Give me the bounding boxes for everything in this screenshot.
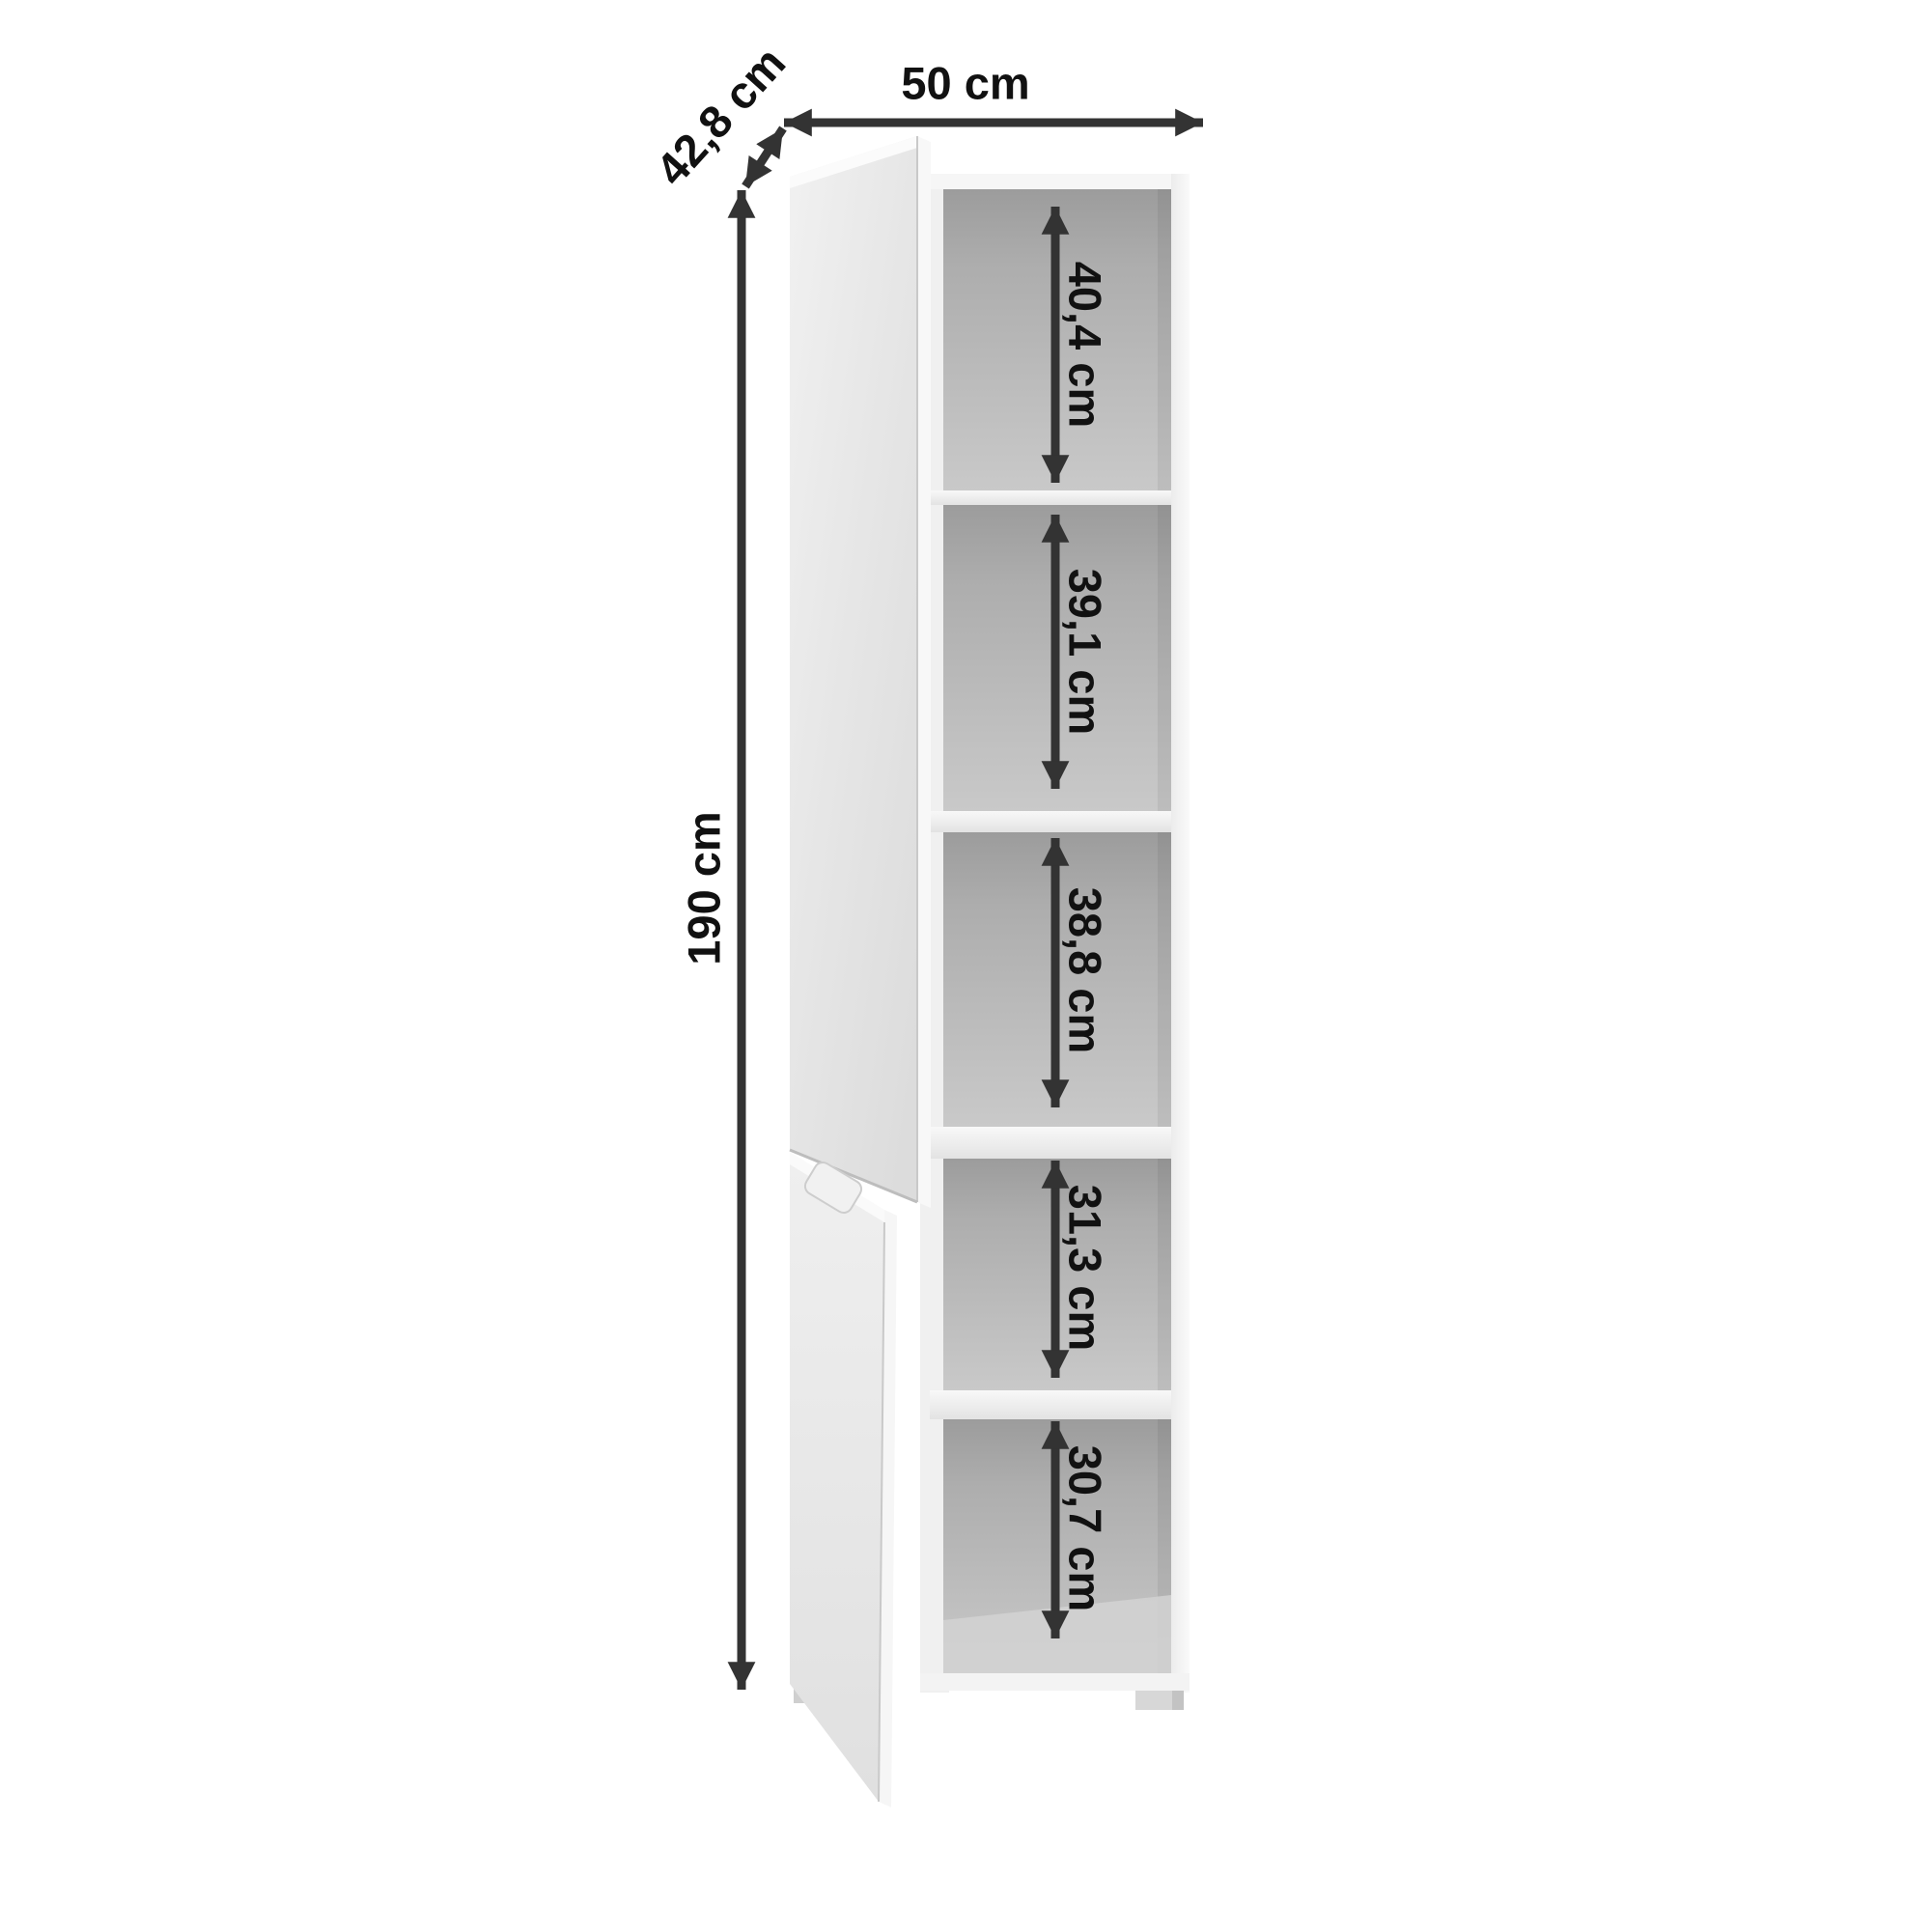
- depth-dimension-arrow: [745, 128, 783, 186]
- compartment-dimension-4: 31,3 cm: [1055, 1161, 1111, 1378]
- depth-dimension: 42,8 cm: [646, 37, 796, 195]
- upper-door: [790, 136, 931, 1208]
- upper-door-face: [790, 136, 917, 1202]
- cabinet-right-foot-shade: [1172, 1691, 1184, 1710]
- shelf-1: [930, 490, 1171, 505]
- compartment-3-label: 38,8 cm: [1060, 887, 1111, 1053]
- shelf-3: [930, 1127, 1171, 1159]
- carcass-right-stile: [1171, 174, 1190, 1693]
- compartment-2-label: 39,1 cm: [1060, 569, 1111, 735]
- interior-corner-shade: [1158, 189, 1171, 1673]
- height-dimension-label: 190 cm: [679, 811, 730, 965]
- compartment-5-label: 30,7 cm: [1060, 1445, 1111, 1611]
- depth-dimension-label: 42,8 cm: [646, 37, 796, 195]
- compartment-4-label: 31,3 cm: [1060, 1185, 1111, 1351]
- shelf-2: [930, 811, 1171, 832]
- width-dimension: 50 cm: [784, 58, 1203, 124]
- furniture-dimension-diagram: 50 cm 42,8 cm 190 cm 40,4 cm 39,1 cm 38,…: [0, 0, 1932, 1932]
- compartment-1-label: 40,4 cm: [1060, 262, 1111, 428]
- carcass-bottom-rail: [920, 1673, 1190, 1691]
- width-dimension-label: 50 cm: [901, 58, 1029, 109]
- compartment-dimension-5: 30,7 cm: [1055, 1421, 1111, 1638]
- lower-door: [790, 1152, 897, 1807]
- carcass-top-rail: [920, 174, 1190, 189]
- shelf-4: [930, 1390, 1171, 1419]
- height-dimension: 190 cm: [679, 190, 742, 1690]
- lower-door-face: [790, 1164, 884, 1802]
- upper-door-side-edge: [917, 136, 931, 1208]
